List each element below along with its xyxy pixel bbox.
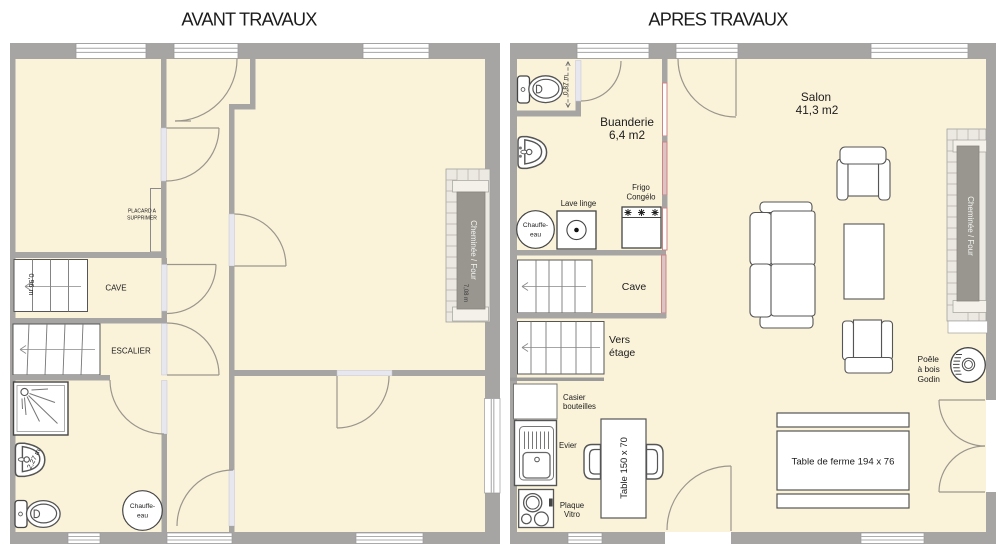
svg-text:Cheminée / Four: Cheminée / Four	[966, 196, 975, 256]
svg-text:Table de ferme 194 x 76: Table de ferme 194 x 76	[792, 457, 895, 468]
svg-text:bouteilles: bouteilles	[563, 402, 596, 411]
svg-text:Lave linge: Lave linge	[561, 199, 597, 208]
svg-text:CAVE: CAVE	[105, 284, 126, 293]
svg-text:Plaque: Plaque	[560, 501, 584, 510]
svg-text:Poêle: Poêle	[918, 354, 940, 364]
svg-text:41,3 m2: 41,3 m2	[796, 103, 839, 117]
svg-text:APRES TRAVAUX: APRES TRAVAUX	[648, 10, 788, 30]
svg-text:Casier: Casier	[563, 393, 586, 402]
svg-text:Buanderie: Buanderie	[600, 115, 654, 129]
svg-text:Vers: Vers	[609, 334, 630, 346]
svg-text:Chauffe-: Chauffe-	[130, 503, 155, 510]
svg-text:Salon: Salon	[801, 90, 831, 104]
svg-text:Godin: Godin	[918, 374, 941, 384]
svg-text:Table 150 x 70: Table 150 x 70	[619, 437, 630, 499]
svg-text:0,87 m: 0,87 m	[563, 74, 570, 95]
svg-text:Cave: Cave	[622, 281, 647, 293]
svg-text:Chauffe-: Chauffe-	[523, 222, 548, 229]
svg-text:ESCALIER: ESCALIER	[111, 347, 151, 356]
svg-text:Evier: Evier	[559, 441, 577, 450]
svg-text:Vitro: Vitro	[564, 510, 581, 519]
svg-text:7,08 m: 7,08 m	[462, 284, 468, 302]
svg-text:PLACARD A: PLACARD A	[128, 209, 157, 215]
svg-text:eau: eau	[137, 513, 148, 520]
svg-text:Cheminée / Four: Cheminée / Four	[469, 220, 478, 280]
svg-text:eau: eau	[530, 232, 541, 239]
svg-text:Frigo: Frigo	[632, 183, 650, 192]
svg-text:Congélo: Congélo	[626, 193, 656, 202]
svg-text:6,4 m2: 6,4 m2	[609, 128, 645, 142]
svg-text:étage: étage	[609, 347, 635, 359]
svg-text:à bois: à bois	[918, 364, 940, 374]
svg-text:SUPPRIMER: SUPPRIMER	[127, 216, 157, 222]
svg-text:0,96 m: 0,96 m	[27, 274, 36, 296]
svg-text:AVANT TRAVAUX: AVANT TRAVAUX	[181, 10, 317, 30]
